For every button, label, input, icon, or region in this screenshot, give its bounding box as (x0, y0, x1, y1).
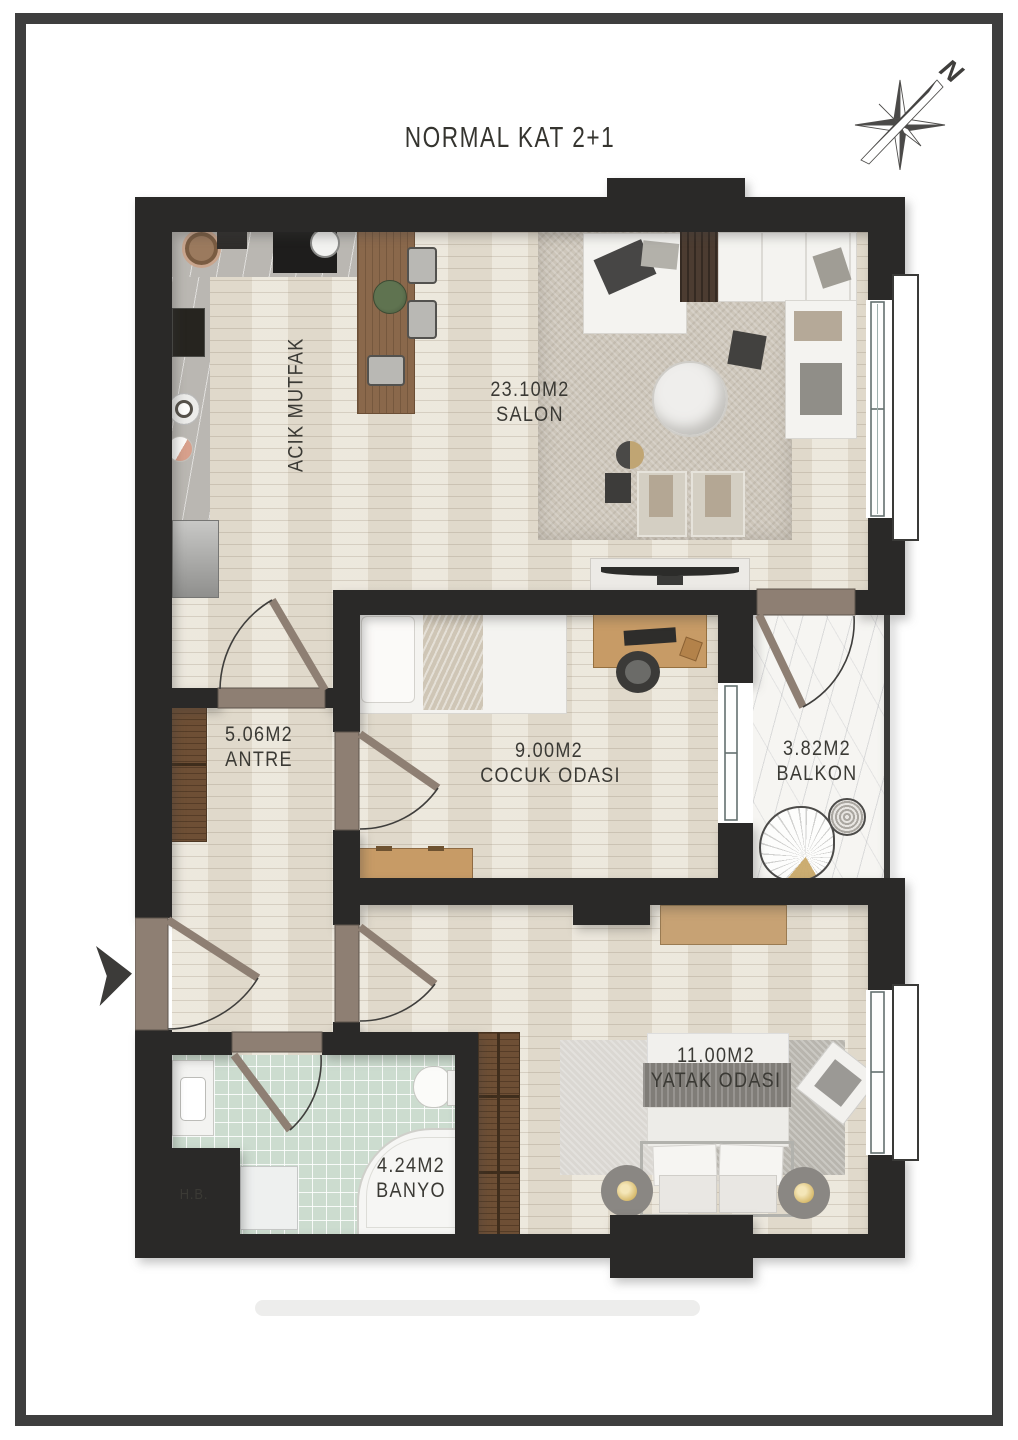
room-area: 3.82M2 (748, 736, 886, 761)
wall-segment (135, 1032, 232, 1055)
room-label-shaft: H.B. (160, 1186, 229, 1203)
room-area: 5.06M2 (190, 722, 328, 747)
room-label-antre: 5.06M2 ANTRE (190, 722, 328, 772)
room-name: SALON (461, 402, 599, 427)
room-label-bedroom: 11.00M2 YATAK ODASI (647, 1043, 785, 1093)
wall-segment (868, 232, 905, 300)
room-name: ACIK MUTFAK (284, 343, 309, 472)
wall-segment (455, 1055, 478, 1234)
page-title: NORMAL KAT 2+1 (389, 122, 631, 155)
room-label-salon: 23.10M2 SALON (461, 377, 599, 427)
room-area: 9.00M2 (480, 738, 618, 763)
wall-segment (322, 1032, 478, 1055)
wall-segment (135, 1234, 905, 1258)
wall-segment (607, 178, 745, 197)
wall-segment (333, 590, 757, 615)
room-name: BALKON (748, 761, 886, 786)
wall-segment (573, 878, 650, 925)
wall-segment (868, 518, 905, 598)
room-area: 4.24M2 (342, 1153, 480, 1178)
wall-segment (610, 1215, 753, 1278)
room-name: ANTRE (190, 747, 328, 772)
room-name: BANYO (342, 1178, 480, 1203)
wall-segment (148, 1148, 240, 1258)
wall-segment (333, 905, 360, 925)
room-label-child: 9.00M2 COCUK ODASI (480, 738, 618, 788)
wall-segment (855, 590, 905, 615)
room-name: COCUK ODASI (480, 763, 618, 788)
wall-segment (135, 197, 172, 918)
room-name: H.B. (160, 1186, 229, 1203)
wall-segment (718, 590, 753, 683)
compass-rose-icon: N (845, 30, 975, 170)
floor-plan: ACIK MUTFAK 23.10M2 SALON 5.06M2 ANTRE 9… (135, 178, 905, 1278)
room-label-bathroom: 4.24M2 BANYO (342, 1153, 480, 1203)
floor-plan-page: NORMAL KAT 2+1 N (0, 0, 1018, 1440)
room-label-balcony: 3.82M2 BALKON (748, 736, 886, 786)
wall-segment (135, 688, 218, 708)
shadow-artifact (255, 1300, 700, 1316)
room-name: YATAK ODASI (647, 1068, 785, 1093)
wall-segment (135, 197, 905, 232)
room-area: 23.10M2 (461, 377, 599, 402)
room-area: 11.00M2 (647, 1043, 785, 1068)
room-label-kitchen: ACIK MUTFAK (284, 343, 309, 472)
